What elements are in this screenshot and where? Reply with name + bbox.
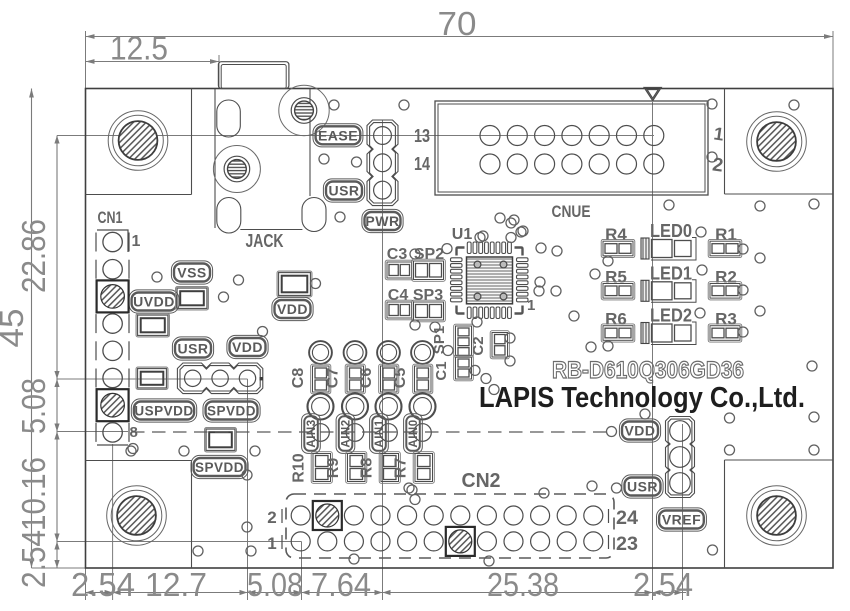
svg-text:12.5: 12.5: [110, 30, 168, 67]
svg-text:LED1: LED1: [650, 263, 692, 283]
svg-text:U1: U1: [452, 226, 473, 243]
svg-text:C5: C5: [392, 368, 409, 389]
svg-text:CN1: CN1: [98, 208, 123, 227]
svg-text:7.64: 7.64: [311, 566, 371, 603]
svg-text:RB-D610Q306GD36: RB-D610Q306GD36: [552, 357, 744, 384]
svg-text:C1: C1: [433, 361, 450, 380]
svg-text:R8: R8: [359, 458, 376, 479]
svg-text:LED0: LED0: [650, 221, 692, 241]
svg-text:23: 23: [616, 534, 638, 555]
svg-text:45: 45: [0, 309, 30, 348]
svg-text:EASE: EASE: [318, 127, 358, 143]
svg-text:70: 70: [438, 5, 477, 42]
svg-text:AIN0: AIN0: [408, 419, 420, 447]
svg-text:VDD: VDD: [624, 423, 655, 439]
svg-text:LAPIS Technology Co.,Ltd.: LAPIS Technology Co.,Ltd.: [479, 382, 805, 414]
svg-text:AIN3: AIN3: [306, 419, 318, 447]
svg-text:UVDD: UVDD: [133, 294, 175, 310]
svg-text:SPVDD: SPVDD: [195, 460, 244, 475]
svg-text:2.54: 2.54: [15, 530, 52, 588]
svg-text:VSS: VSS: [177, 265, 207, 281]
svg-text:CNUE: CNUE: [552, 202, 591, 221]
svg-text:CN2: CN2: [462, 470, 501, 492]
svg-text:C7: C7: [325, 368, 342, 389]
svg-text:R7: R7: [393, 458, 410, 479]
svg-text:10.16: 10.16: [15, 457, 52, 531]
svg-text:C4: C4: [388, 287, 409, 304]
svg-text:25.38: 25.38: [487, 566, 559, 603]
svg-text:5.08: 5.08: [15, 378, 52, 434]
svg-text:PWR: PWR: [365, 213, 399, 229]
svg-text:SPVDD: SPVDD: [207, 403, 256, 418]
svg-text:SP2: SP2: [414, 246, 444, 263]
svg-text:VDD: VDD: [232, 339, 263, 355]
svg-text:USR: USR: [627, 479, 658, 495]
svg-text:R10: R10: [291, 453, 308, 482]
svg-text:C6: C6: [358, 368, 375, 389]
svg-text:12.7: 12.7: [145, 566, 207, 603]
svg-text:USR: USR: [328, 183, 359, 199]
svg-text:2.54: 2.54: [633, 566, 693, 603]
svg-text:USR: USR: [177, 341, 208, 357]
svg-text:1: 1: [132, 233, 141, 250]
svg-text:LED2: LED2: [650, 306, 692, 326]
svg-text:JACK: JACK: [246, 231, 284, 251]
svg-text:USPVDD: USPVDD: [134, 403, 193, 418]
svg-text:SP3: SP3: [413, 287, 443, 304]
svg-text:24: 24: [616, 508, 638, 529]
svg-text:AIN1: AIN1: [374, 419, 386, 447]
svg-text:2: 2: [267, 508, 276, 527]
svg-text:VDD: VDD: [277, 301, 308, 317]
svg-text:2.54: 2.54: [71, 566, 135, 603]
svg-text:1: 1: [527, 297, 535, 314]
svg-text:5.08: 5.08: [247, 566, 303, 603]
svg-text:14: 14: [414, 154, 430, 174]
svg-text:C2: C2: [470, 336, 487, 355]
svg-text:R9: R9: [325, 458, 342, 479]
svg-text:22.86: 22.86: [15, 219, 52, 293]
svg-text:AIN2: AIN2: [341, 419, 353, 447]
svg-text:C8: C8: [290, 368, 307, 389]
svg-text:13: 13: [414, 126, 430, 146]
svg-text:VREF: VREF: [662, 512, 701, 528]
svg-text:1: 1: [267, 534, 276, 553]
